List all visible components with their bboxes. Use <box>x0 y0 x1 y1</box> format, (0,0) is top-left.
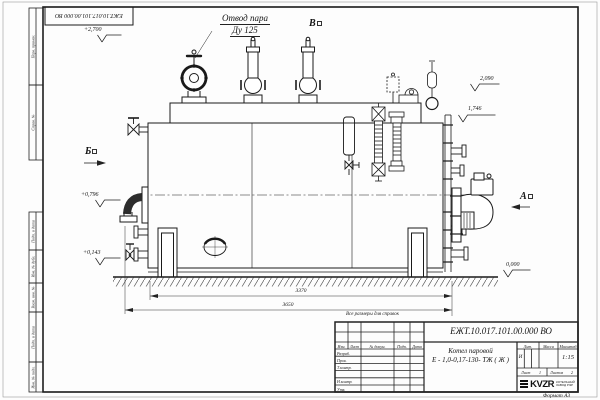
top-stamp-doc-number: ЕЖТ.10.017.101.00.000 ВО <box>45 11 133 18</box>
drawing-sheet: ЕЖТ.10.017.101.00.000 ВО Перв. примен. С… <box>0 0 600 400</box>
tb-massa-header: Масса <box>539 344 558 349</box>
elevation-0143: +0,143 <box>83 250 101 257</box>
org-name: КОТЕЛЬНЫЙ ЗАВОД РЭР <box>556 381 575 388</box>
tb-row-utv: Утв. <box>337 387 345 392</box>
product-name: Котел паровой Е - 1,0-0,17-130- ТЖ ( Ж ) <box>424 347 517 365</box>
view-marker-v: В <box>309 18 322 29</box>
margin-label-perv-primen: Перв. примен. <box>31 12 36 82</box>
margin-label-inv-podl: Инв. № подл. <box>31 342 36 400</box>
sampler <box>344 117 360 175</box>
tb-scale-value: 1:15 <box>558 354 578 362</box>
tb-header-izm: Изм. <box>335 344 348 349</box>
sheet-ref-box <box>92 149 97 154</box>
reference-note: Все размеры для справок <box>335 312 410 318</box>
product-name-line1: Котел паровой <box>448 347 493 355</box>
sheet-ref-box <box>317 21 322 26</box>
view-marker-a: А <box>520 191 533 202</box>
callout-line2: Ду 125 <box>230 25 259 37</box>
water-level-gauge-2 <box>389 112 404 171</box>
tb-lit-value: И <box>517 355 524 361</box>
elevation-0796: +0,796 <box>81 192 99 199</box>
manufacturer-logo: KVZR КОТЕЛЬНЫЙ ЗАВОД РЭР <box>517 377 578 391</box>
tb-scale-header: Масштаб <box>558 344 578 349</box>
drain-stubs <box>126 226 148 261</box>
tb-row-tkontr: Т.контр. <box>337 365 352 370</box>
org-line2: ЗАВОД РЭР <box>556 384 575 388</box>
safety-valve-1 <box>241 37 265 103</box>
sheet-frame <box>3 2 597 397</box>
view-marker-b-letter: Б <box>85 146 91 157</box>
steam-outlet-callout: Отвод пара Ду 125 <box>205 13 285 37</box>
support-legs <box>158 228 427 277</box>
tb-sheet-label: Лист <box>521 370 530 375</box>
burner <box>450 173 493 242</box>
tb-lit-header: Лит. <box>517 344 539 349</box>
format-note: Формат А3 <box>535 393 578 400</box>
safety-valve-2 <box>296 37 320 103</box>
elevation-2700: +2,700 <box>84 27 102 34</box>
dimension-3650: 3650 <box>273 302 303 309</box>
tb-sheets-label: Листов <box>550 370 563 375</box>
tb-row-prov: Пров. <box>337 358 347 363</box>
product-name-line2: Е - 1,0-0,17-130- ТЖ ( Ж ) <box>432 356 509 364</box>
ground <box>113 277 498 287</box>
tb-row-razrab: Разраб. <box>337 351 350 356</box>
water-level-gauge-1 <box>372 103 385 181</box>
view-marker-b: Б <box>85 146 97 157</box>
manhole <box>202 236 228 258</box>
view-marker-v-letter: В <box>309 18 316 29</box>
tb-sheets-value: 2 <box>571 370 573 375</box>
elevation-0000: 0,000 <box>506 262 520 269</box>
left-valve <box>128 118 148 135</box>
steam-valve <box>181 31 212 103</box>
elevation-1746: 1,746 <box>468 106 482 113</box>
elevation-2090: 2,090 <box>480 76 494 83</box>
logo-text: KVZR <box>530 379 554 390</box>
tb-header-data: Дата <box>410 344 424 349</box>
tb-sheet-value: 1 <box>539 370 541 375</box>
tb-header-list: Лист <box>348 344 361 349</box>
feed-elbow <box>120 187 148 223</box>
margin-label-sprav-no: Справ. № <box>31 88 36 158</box>
doc-number: ЕЖТ.10.017.101.00.000 ВО <box>424 326 578 337</box>
sheet-ref-box <box>528 194 533 199</box>
dimension-3370: 3370 <box>286 288 316 295</box>
tb-header-podp: Подп. <box>394 344 410 349</box>
logo-bars-icon <box>520 380 528 388</box>
callout-line1: Отвод пара <box>220 13 270 25</box>
tb-row-nkontr: Н.контр. <box>337 379 352 384</box>
drawing-linework <box>0 0 600 400</box>
tb-header-doc: № докум. <box>361 344 394 349</box>
view-marker-a-letter: А <box>520 191 527 202</box>
drum-fittings <box>387 61 438 110</box>
